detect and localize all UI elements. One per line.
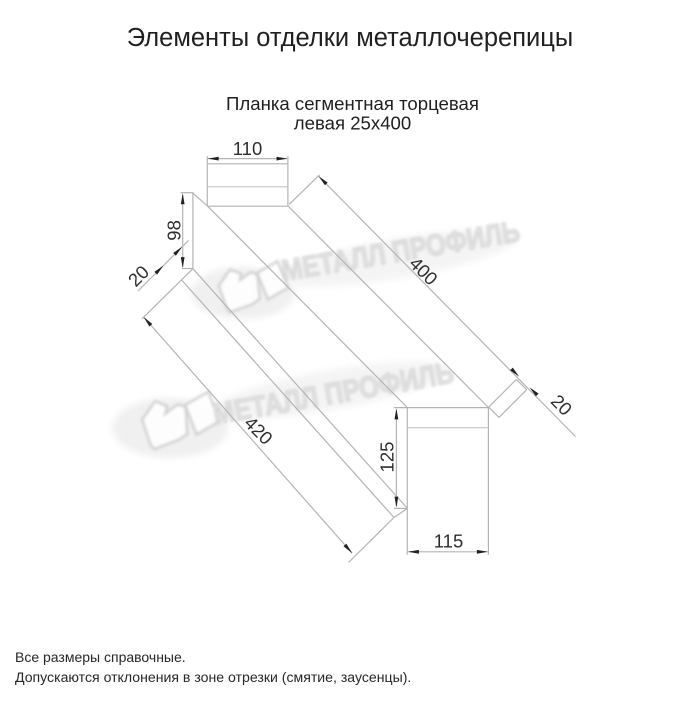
svg-text:110: 110 <box>233 138 263 159</box>
svg-text:Допускаются отклонения в зоне: Допускаются отклонения в зоне отрезки (с… <box>15 669 411 685</box>
svg-text:Элементы отделки металлочерепи: Элементы отделки металлочерепицы <box>127 24 573 52</box>
svg-text:Все размеры справочные.: Все размеры справочные. <box>15 649 186 665</box>
svg-text:115: 115 <box>434 531 464 552</box>
svg-text:125: 125 <box>376 442 397 473</box>
svg-text:левая 25х400: левая 25х400 <box>294 113 411 134</box>
svg-text:98: 98 <box>163 220 184 241</box>
svg-text:Планка сегментная торцевая: Планка сегментная торцевая <box>226 93 479 114</box>
